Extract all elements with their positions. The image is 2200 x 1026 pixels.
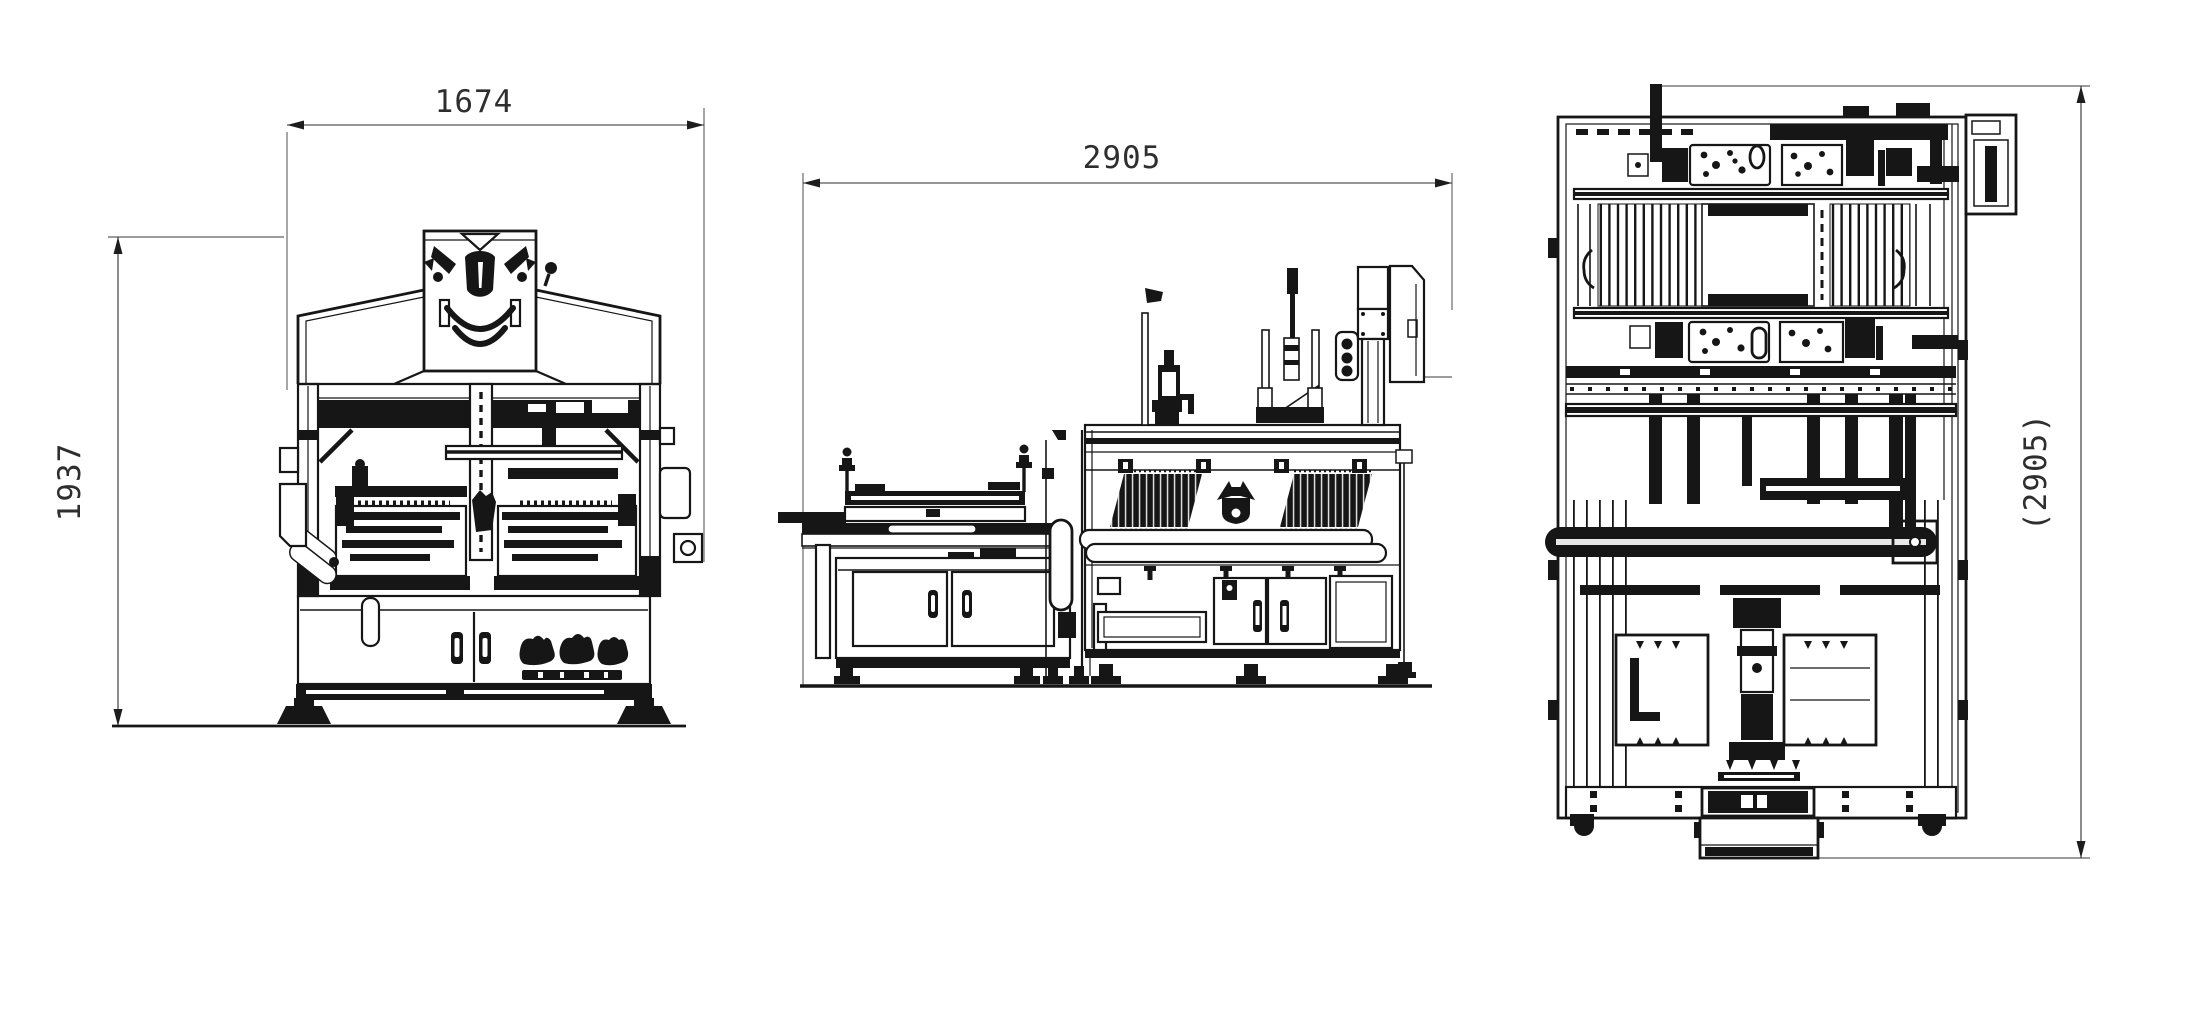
cabinet-door — [1268, 578, 1326, 644]
roller-conveyor-plan — [1548, 204, 1930, 306]
roller-beam — [845, 491, 1025, 521]
sensor-post — [1142, 313, 1148, 425]
handle-capsule — [1050, 520, 1072, 610]
top-length-label: (2905) — [2018, 413, 2054, 531]
gripper — [472, 490, 496, 532]
front-height-label: 1937 — [52, 443, 88, 522]
cross-members — [1580, 585, 1940, 595]
door-handle — [1253, 600, 1262, 632]
bottom-tray — [1694, 818, 1824, 858]
side-panel-box — [1966, 115, 2016, 214]
engineering-drawing: 1674 1937 — [0, 0, 2200, 1026]
door-handle — [962, 590, 972, 618]
mast — [1358, 267, 1388, 425]
valve-plate — [1336, 332, 1358, 380]
door-handle — [451, 632, 463, 664]
brand-logo — [520, 634, 629, 680]
door-handle — [1280, 600, 1289, 632]
vent-panel — [1280, 471, 1372, 530]
lower-cabinet — [298, 596, 650, 684]
hasp-loop — [362, 598, 379, 646]
fixture-plate-left — [1616, 635, 1708, 745]
door-handle — [479, 632, 491, 664]
door-handle — [928, 590, 938, 618]
u-tube-bar — [1545, 521, 1937, 563]
base-frame — [296, 684, 652, 700]
pole — [1650, 84, 1662, 162]
fixture-plate-right — [1784, 635, 1876, 745]
side-length-label: 2905 — [1083, 140, 1162, 176]
control-panel — [1390, 266, 1424, 382]
vent-panel — [1110, 471, 1202, 530]
cad-sheet: 1674 1937 — [0, 0, 2200, 1026]
front-width-label: 1674 — [435, 84, 514, 120]
conveyor-cabinet — [816, 545, 1070, 668]
head-column — [424, 231, 536, 371]
transfer-rail — [1080, 530, 1400, 565]
top-machine-plan — [1545, 84, 2016, 858]
